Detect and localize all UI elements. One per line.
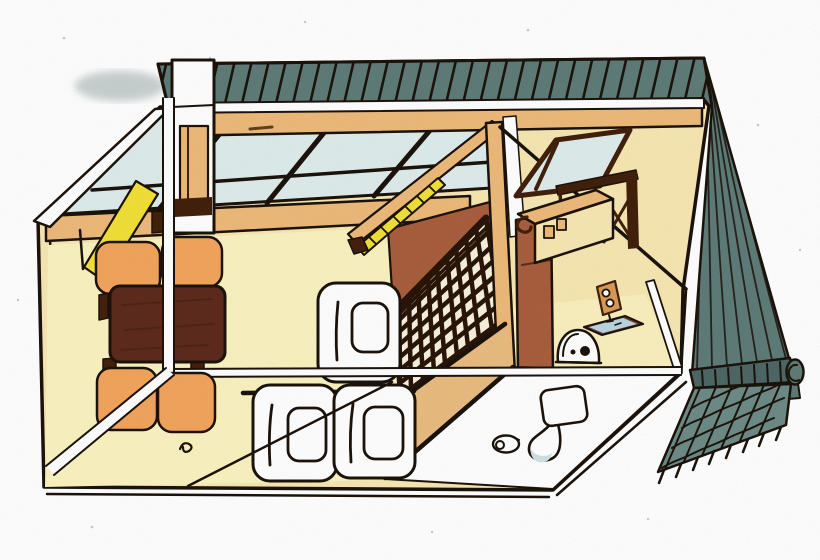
illustration-canvas — [0, 0, 820, 560]
paper-grain — [0, 0, 820, 560]
